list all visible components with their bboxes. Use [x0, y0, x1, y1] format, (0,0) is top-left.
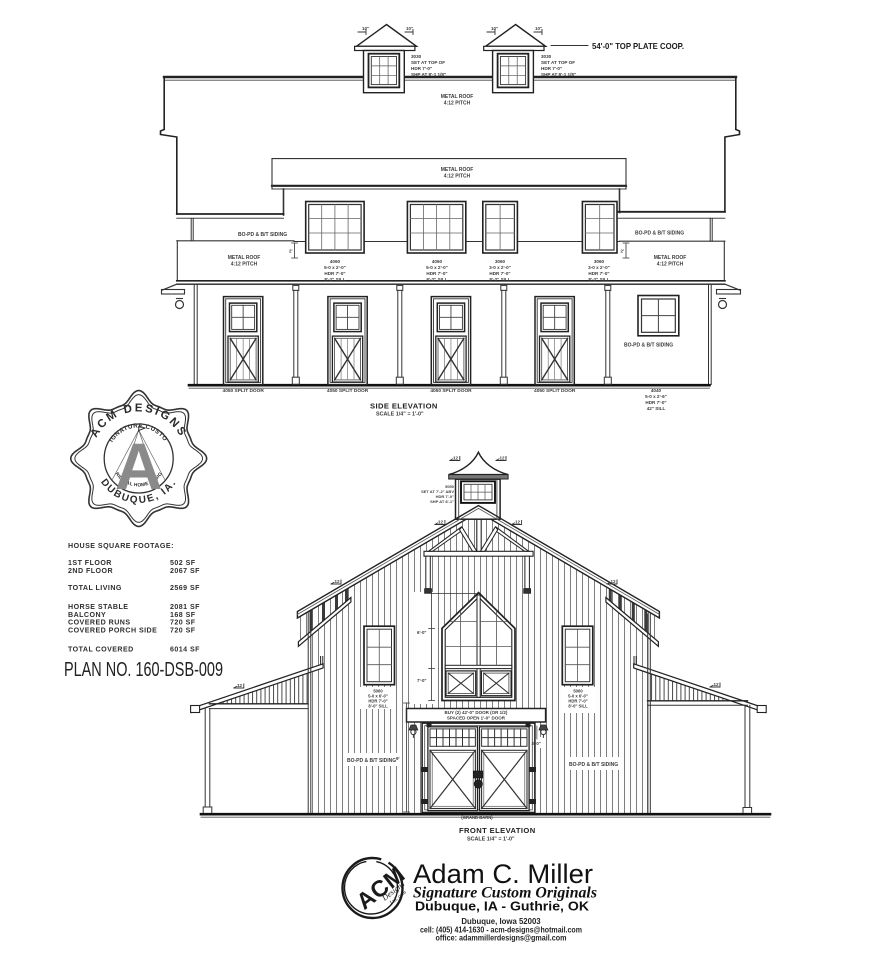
svg-text:12: 12 — [515, 520, 521, 525]
svg-text:4060: 4060 — [432, 259, 443, 264]
svg-text:10": 10" — [535, 26, 542, 31]
svg-text:4040: 4040 — [651, 388, 662, 393]
svg-text:office: adammillerdesigns@gmai: office: adammillerdesigns@gmail.com — [436, 933, 567, 943]
svg-text:4050 SPLIT DOOR: 4050 SPLIT DOOR — [430, 388, 472, 394]
svg-text:12: 12 — [714, 682, 720, 687]
svg-text:BO-PD & B/T SIDING: BO-PD & B/T SIDING — [624, 343, 673, 349]
svg-text:HDR 7'-0": HDR 7'-0" — [426, 271, 447, 276]
svg-text:HDR 7'-0": HDR 7'-0" — [411, 66, 432, 71]
svg-text:Dubuque, IA - Guthrie, OK: Dubuque, IA - Guthrie, OK — [415, 900, 589, 914]
svg-text:8'-2" SILL: 8'-2" SILL — [426, 277, 447, 282]
svg-text:3030: 3030 — [541, 54, 552, 59]
svg-text:SHP AT 8'-1 1/8": SHP AT 8'-1 1/8" — [541, 72, 576, 77]
svg-text:HDR 7'-0": HDR 7'-0" — [541, 66, 562, 71]
svg-text:BALCONY: BALCONY — [68, 611, 106, 619]
svg-text:6'-0": 6'-0" — [417, 630, 426, 635]
svg-text:HDR 7'-0": HDR 7'-0" — [324, 271, 345, 276]
svg-text:5-0 x 2'-0": 5-0 x 2'-0" — [324, 265, 346, 270]
svg-text:3-0 x 2'-0": 3-0 x 2'-0" — [588, 265, 610, 270]
svg-text:METAL ROOF: METAL ROOF — [441, 94, 474, 100]
svg-text:2': 2' — [289, 249, 293, 254]
svg-text:4:12 PITCH: 4:12 PITCH — [444, 101, 471, 107]
svg-text:FRONT ELEVATION: FRONT ELEVATION — [459, 826, 536, 835]
svg-text:9': 9' — [396, 756, 400, 761]
svg-text:42" SILL: 42" SILL — [647, 406, 666, 411]
svg-text:BO-PD & B/T SIDING: BO-PD & B/T SIDING — [569, 762, 618, 768]
svg-text:4060: 4060 — [330, 259, 341, 264]
svg-text:4:12 PITCH: 4:12 PITCH — [444, 174, 471, 180]
svg-text:10": 10" — [491, 26, 498, 31]
svg-text:3'-0": 3'-0" — [532, 741, 541, 746]
svg-text:12: 12 — [438, 520, 444, 525]
svg-text:SIDE ELEVATION: SIDE ELEVATION — [370, 402, 438, 411]
svg-text:SCALE 1/4" = 1'-0": SCALE 1/4" = 1'-0" — [467, 837, 515, 843]
svg-text:HDR 7'-0": HDR 7'-0" — [588, 271, 609, 276]
svg-text:BO-PD & B/T SIDING: BO-PD & B/T SIDING — [238, 232, 287, 238]
svg-text:8'-0" SILL: 8'-0" SILL — [368, 704, 388, 709]
svg-text:BUY (2) 42'-0" DOOR (OR 1/2): BUY (2) 42'-0" DOOR (OR 1/2) — [445, 710, 508, 715]
svg-text:SHP AT 8'-1 1/8": SHP AT 8'-1 1/8" — [411, 72, 446, 77]
svg-text:METAL ROOF: METAL ROOF — [654, 255, 687, 261]
svg-text:4:12 PITCH: 4:12 PITCH — [657, 262, 684, 268]
svg-text:SPACED OPEN 1'-0" DOOR: SPACED OPEN 1'-0" DOOR — [447, 716, 506, 721]
svg-text:2081 SF: 2081 SF — [170, 603, 200, 611]
svg-text:3030: 3030 — [411, 54, 422, 59]
svg-text:8'-2" SILL: 8'-2" SILL — [324, 277, 345, 282]
svg-text:BO-PD & B/T SIDING: BO-PD & B/T SIDING — [347, 758, 396, 764]
svg-text:3-0 x 2'-0": 3-0 x 2'-0" — [489, 265, 511, 270]
svg-text:4050 SPLIT DOOR: 4050 SPLIT DOOR — [534, 388, 576, 394]
svg-text:PLAN NO. 160-DSB-009: PLAN NO. 160-DSB-009 — [64, 658, 223, 681]
svg-text:168 SF: 168 SF — [170, 611, 196, 619]
svg-text:3060: 3060 — [594, 259, 605, 264]
svg-text:TOTAL COVERED: TOTAL COVERED — [68, 646, 134, 654]
svg-text:5-0 x 2'-0": 5-0 x 2'-0" — [426, 265, 448, 270]
svg-text:8'-2" SILL: 8'-2" SILL — [588, 277, 609, 282]
svg-text:3060: 3060 — [495, 259, 506, 264]
svg-text:8'-0" SILL: 8'-0" SILL — [568, 704, 588, 709]
svg-text:12: 12 — [500, 456, 506, 461]
svg-text:10": 10" — [362, 26, 369, 31]
svg-text:TOTAL LIVING: TOTAL LIVING — [68, 584, 122, 592]
svg-text:1ST FLOOR: 1ST FLOOR — [68, 559, 112, 567]
svg-text:SET AT TOP OF: SET AT TOP OF — [541, 60, 575, 65]
svg-text:12: 12 — [453, 456, 459, 461]
svg-text:HORSE STABLE: HORSE STABLE — [68, 603, 128, 611]
svg-text:720 SF: 720 SF — [170, 619, 196, 627]
svg-text:7'-0": 7'-0" — [417, 678, 426, 683]
svg-text:54'-0" TOP PLATE COOP.: 54'-0" TOP PLATE COOP. — [592, 41, 684, 51]
svg-text:2': 2' — [621, 249, 625, 254]
svg-text:COVERED PORCH SIDE: COVERED PORCH SIDE — [68, 626, 157, 634]
svg-text:SCALE 1/4" = 1'-0": SCALE 1/4" = 1'-0" — [376, 412, 424, 418]
svg-text:4050 SPLIT DOOR: 4050 SPLIT DOOR — [327, 388, 369, 394]
svg-text:HDR 7'-0": HDR 7'-0" — [645, 400, 666, 405]
svg-text:12: 12 — [611, 579, 617, 584]
svg-text:BO-PD & B/T SIDING: BO-PD & B/T SIDING — [635, 231, 684, 237]
svg-text:METAL ROOF: METAL ROOF — [441, 167, 474, 173]
svg-text:(GRAND BARN): (GRAND BARN) — [461, 815, 493, 820]
svg-text:2067 SF: 2067 SF — [170, 567, 200, 575]
svg-text:2ND FLOOR: 2ND FLOOR — [68, 567, 113, 575]
svg-text:5-0 x 2'-6": 5-0 x 2'-6" — [645, 394, 667, 399]
svg-text:HOUSE SQUARE FOOTAGE:: HOUSE SQUARE FOOTAGE: — [68, 542, 174, 550]
svg-text:A: A — [115, 429, 163, 503]
svg-text:4050 SPLIT DOOR: 4050 SPLIT DOOR — [223, 388, 265, 394]
svg-text:10": 10" — [406, 26, 413, 31]
svg-text:4:12 PITCH: 4:12 PITCH — [231, 262, 258, 268]
svg-text:12: 12 — [335, 579, 341, 584]
svg-text:METAL ROOF: METAL ROOF — [228, 255, 261, 261]
svg-text:COVERED RUNS: COVERED RUNS — [68, 619, 131, 627]
svg-text:720 SF: 720 SF — [170, 626, 196, 634]
svg-text:SET AT TOP OF: SET AT TOP OF — [411, 60, 445, 65]
svg-text:12: 12 — [237, 683, 243, 688]
svg-text:2569 SF: 2569 SF — [170, 584, 200, 592]
svg-text:6014 SF: 6014 SF — [170, 646, 200, 654]
svg-text:502 SF: 502 SF — [170, 559, 196, 567]
svg-text:8'-2" SILL: 8'-2" SILL — [489, 277, 510, 282]
svg-text:HDR 7'-0": HDR 7'-0" — [489, 271, 510, 276]
svg-text:SHP AT 8'-1": SHP AT 8'-1" — [430, 499, 454, 504]
